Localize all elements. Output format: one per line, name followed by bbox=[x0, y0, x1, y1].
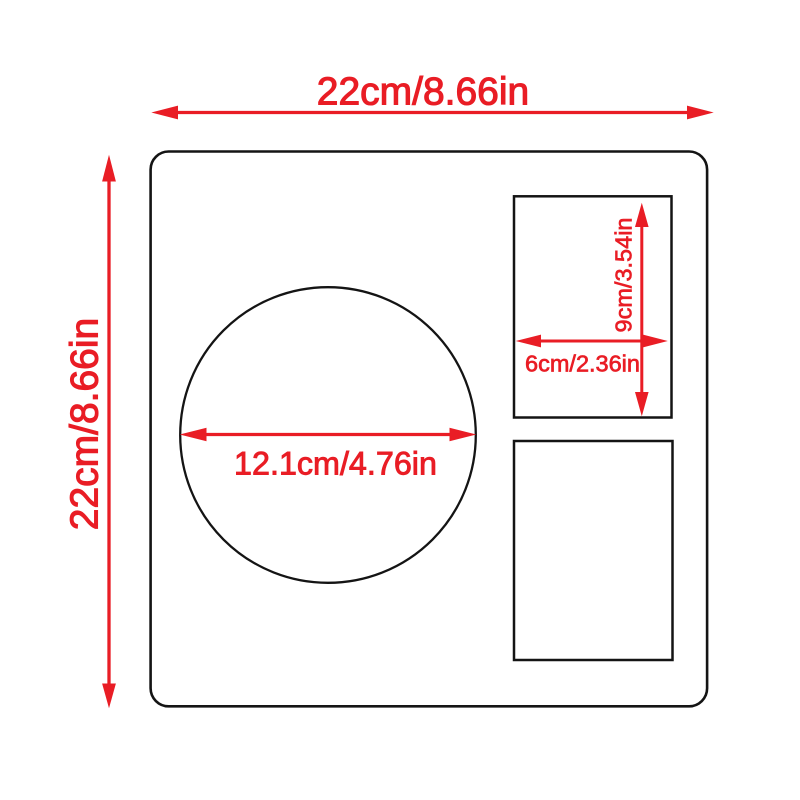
svg-text:22cm/8.66in: 22cm/8.66in bbox=[317, 71, 529, 114]
svg-text:6cm/2.36in: 6cm/2.36in bbox=[525, 351, 640, 377]
svg-text:22cm/8.66in: 22cm/8.66in bbox=[64, 318, 107, 530]
svg-text:12.1cm/4.76in: 12.1cm/4.76in bbox=[234, 446, 437, 482]
svg-text:9cm/3.54in: 9cm/3.54in bbox=[611, 218, 637, 333]
